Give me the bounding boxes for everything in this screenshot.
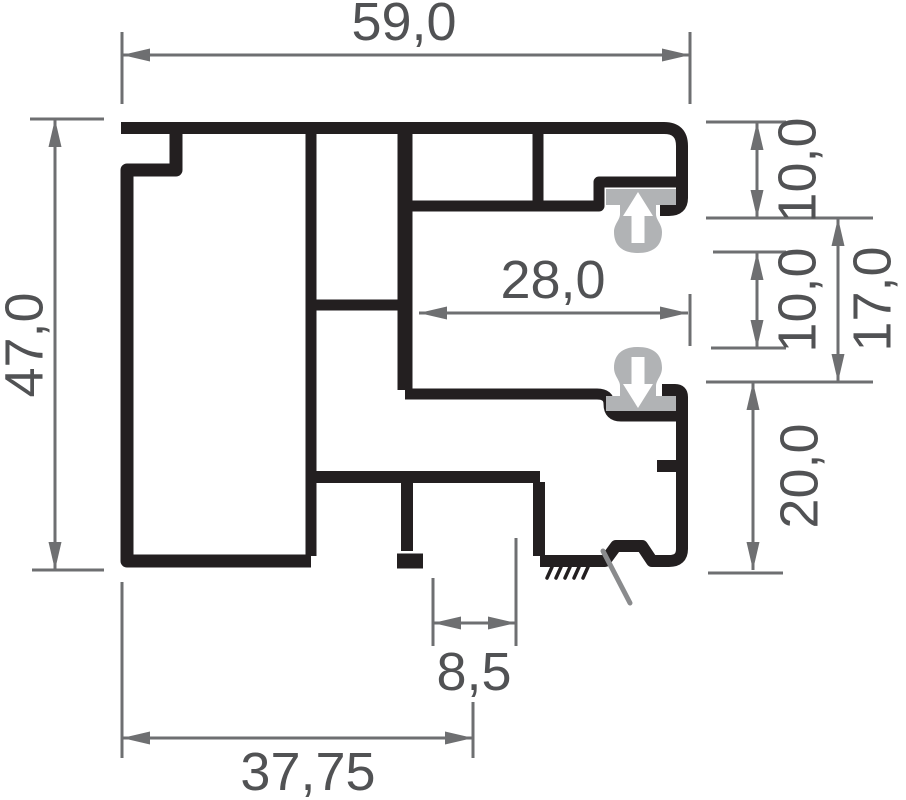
- arrowhead-up: [751, 122, 764, 150]
- arrowhead-right: [488, 617, 516, 630]
- technical-drawing-canvas: 59,0 47,0 28,0 10,0: [0, 0, 906, 800]
- arrowhead-up: [747, 382, 760, 410]
- arrowhead-left: [419, 307, 447, 320]
- dimension-label: 8,5: [436, 642, 511, 702]
- gasket-bottom: [606, 347, 676, 411]
- dimension-label: 17,0: [842, 246, 902, 351]
- arrowhead-left: [122, 732, 150, 745]
- arrowhead-right: [660, 307, 688, 320]
- dimension-groove-width-bottom: 8,5: [433, 538, 516, 702]
- arrowhead-up: [751, 252, 764, 280]
- arrowhead-up: [832, 218, 845, 246]
- arrowhead-left: [433, 617, 461, 630]
- dimension-gap-middle-right: 10,0: [711, 247, 827, 352]
- profile-left-and-bottom: [127, 129, 311, 561]
- dimension-width-top: 59,0: [122, 0, 690, 104]
- dimension-label: 10,0: [767, 117, 827, 222]
- dimension-label: 59,0: [351, 0, 456, 52]
- dimension-width-bottom: 37,75: [122, 582, 473, 800]
- profile-outline: [121, 128, 682, 603]
- dimension-annotations: 59,0 47,0 28,0 10,0: [0, 0, 902, 800]
- dimension-label: 28,0: [500, 250, 605, 310]
- arrowhead-down: [747, 542, 760, 570]
- dimension-label: 37,75: [240, 742, 375, 800]
- arrowhead-down: [832, 354, 845, 382]
- gasket-top: [606, 189, 676, 253]
- dimension-label: 47,0: [0, 292, 54, 397]
- arrowhead-down: [751, 190, 764, 218]
- dimension-height-left: 47,0: [0, 119, 104, 570]
- arrowhead-down: [751, 320, 764, 348]
- profile-cross-section-drawing: 59,0 47,0 28,0 10,0: [0, 0, 906, 800]
- arrowhead-left: [122, 49, 150, 62]
- arrowhead-right: [662, 49, 690, 62]
- dimension-slot-width-inner: 28,0: [419, 250, 690, 346]
- serration-marks: [547, 567, 588, 578]
- arrowhead-right: [445, 732, 473, 745]
- dimension-label: 20,0: [769, 423, 829, 528]
- dimension-height-bottom-right: 20,0: [708, 382, 829, 573]
- arrowhead-down: [49, 542, 62, 570]
- dimension-offset-top-right: 10,0: [706, 117, 873, 222]
- arrowhead-up: [49, 119, 62, 147]
- dimension-label: 10,0: [767, 247, 827, 352]
- break-mark: [603, 551, 630, 603]
